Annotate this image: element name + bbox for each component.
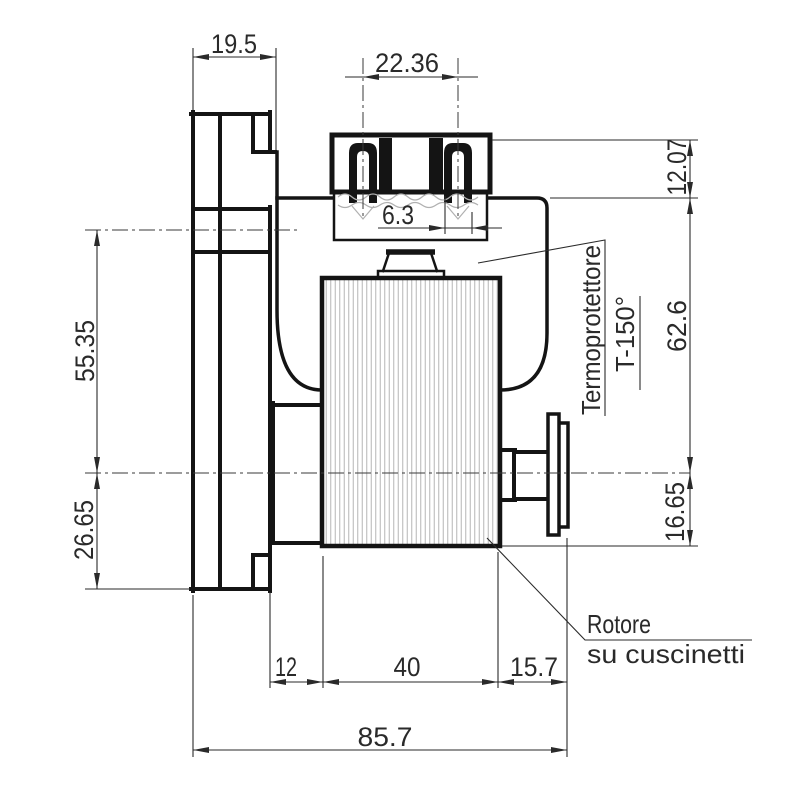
motor-lamination-stack bbox=[322, 278, 500, 546]
label-rotor-bearings: su cuscinetti bbox=[587, 639, 745, 669]
dim-terminal-pitch: 22.36 bbox=[375, 48, 439, 78]
shaft-hub bbox=[514, 452, 549, 499]
gear-motor-drawing: 19.5 22.36 6.3 12 40 15.7 85.7 55.35 26.… bbox=[0, 0, 800, 800]
motor-body bbox=[322, 278, 500, 546]
dim-bracket-to-axis: 62.6 bbox=[662, 300, 692, 352]
dim-upper-axis-distance: 55.35 bbox=[70, 320, 100, 382]
dim-motor-length: 40 bbox=[394, 652, 421, 682]
dim-shaft-length: 15.7 bbox=[510, 652, 558, 682]
terminal-wall bbox=[379, 138, 392, 192]
dim-axis-to-motor-base: 16.65 bbox=[660, 482, 690, 542]
label-rotor: Rotore bbox=[587, 609, 651, 639]
output-shaft bbox=[500, 414, 568, 535]
dim-total-length: 85.7 bbox=[358, 722, 413, 752]
annotation-labels: Termoprotettore T-150° Rotore su cuscine… bbox=[576, 245, 745, 669]
shaft-disc-front bbox=[548, 414, 559, 535]
dim-faston-width: 6.3 bbox=[382, 200, 414, 230]
dim-axis-to-base: 26.65 bbox=[69, 500, 99, 560]
label-thermal-protector-temp: T-150° bbox=[610, 296, 640, 372]
gearbox-housing bbox=[191, 112, 275, 591]
dim-flange-width: 12 bbox=[275, 652, 297, 682]
technical-drawing-canvas: 19.5 22.36 6.3 12 40 15.7 85.7 55.35 26.… bbox=[0, 0, 800, 800]
label-thermal-protector: Termoprotettore bbox=[576, 245, 606, 415]
dim-gearbox-depth: 19.5 bbox=[211, 29, 257, 59]
terminal-wall bbox=[429, 138, 443, 192]
dim-terminal-height: 12.07 bbox=[662, 139, 692, 196]
thermal-protector-cap bbox=[378, 252, 444, 277]
